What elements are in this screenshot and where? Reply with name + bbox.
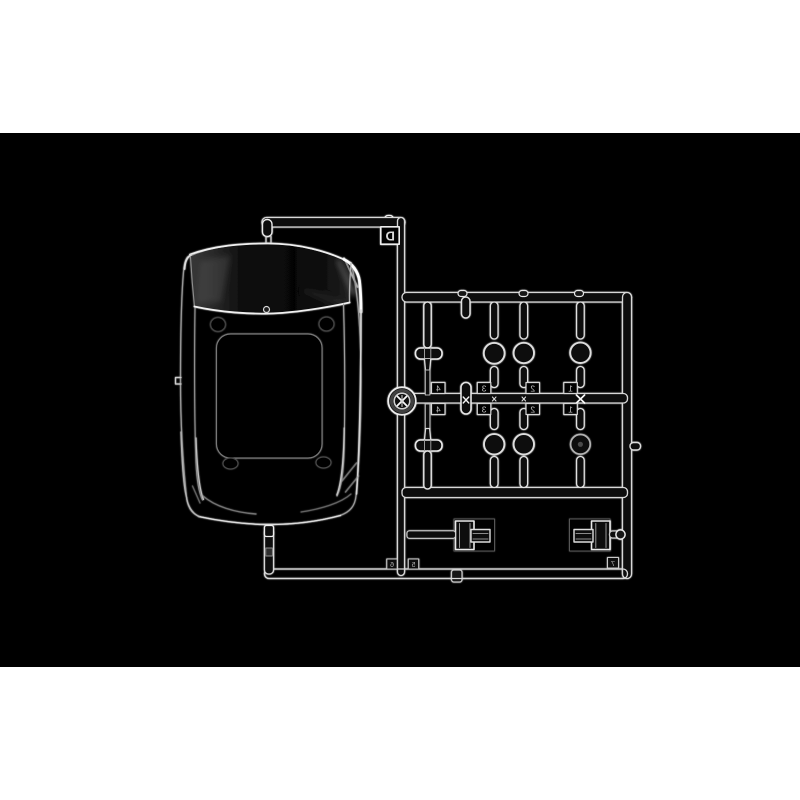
svg-text:D: D — [386, 229, 395, 244]
svg-text:3: 3 — [481, 405, 486, 415]
svg-text:1: 1 — [568, 405, 573, 415]
svg-text:7: 7 — [611, 559, 615, 568]
svg-text:5: 5 — [411, 562, 415, 569]
svg-text:2: 2 — [530, 384, 535, 394]
svg-text:6: 6 — [390, 562, 394, 569]
svg-text:4: 4 — [436, 405, 441, 415]
svg-text:1: 1 — [568, 384, 573, 394]
svg-text:3: 3 — [481, 384, 486, 394]
svg-text:4: 4 — [436, 384, 441, 394]
svg-text:2: 2 — [530, 405, 535, 415]
